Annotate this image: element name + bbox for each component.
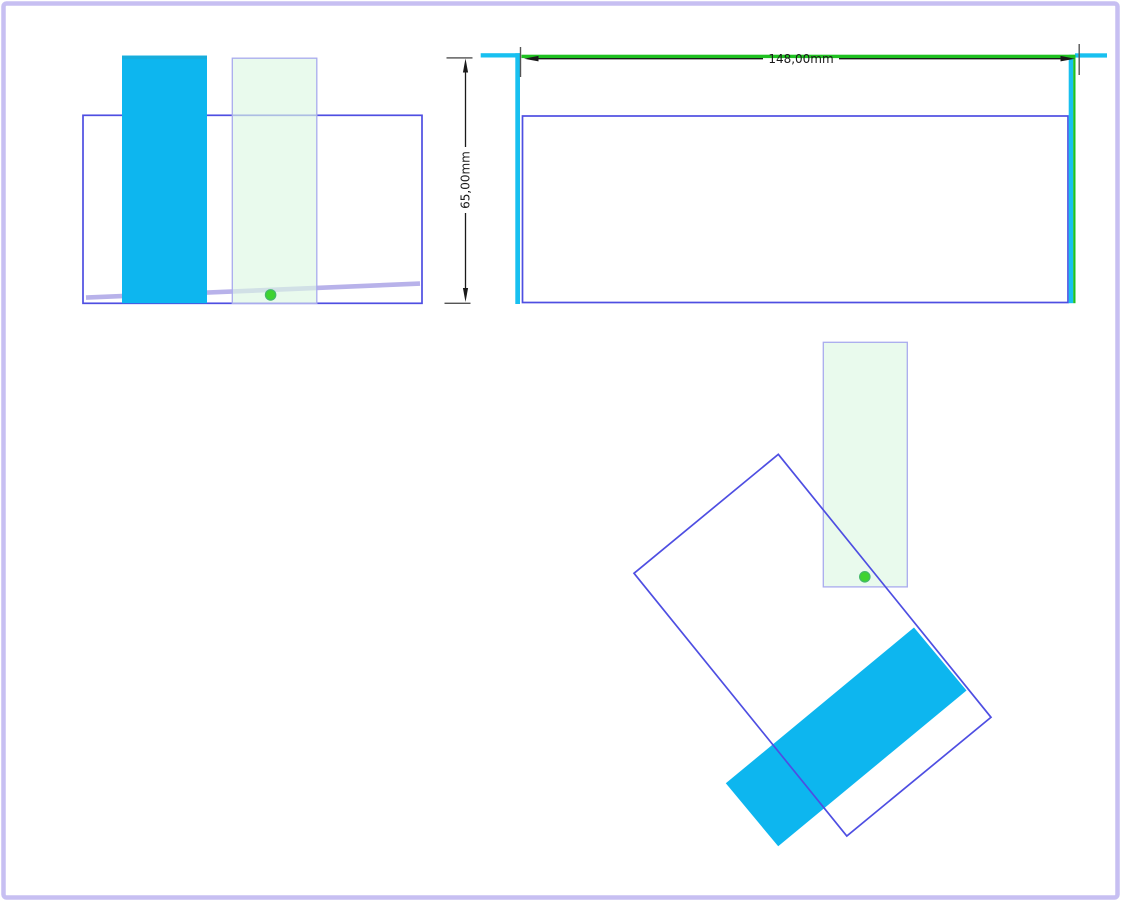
top-outline-rect[interactable] (523, 116, 1069, 303)
height-dim-label[interactable]: 65,00mm (459, 151, 473, 209)
width-dim-extension-tick-left (520, 47, 521, 77)
rotated-vertex-dot[interactable] (860, 572, 870, 582)
height-dim-extension-tick-top (447, 57, 473, 58)
front-glass-panel[interactable] (232, 58, 316, 303)
height-dimension: 65,00mm (445, 57, 473, 304)
top-view: 148,00mm 65,00mm (445, 44, 1108, 304)
front-cyan-solid[interactable] (122, 56, 207, 304)
width-dim-label[interactable]: 148,00mm (768, 52, 833, 66)
rotated-view (634, 342, 991, 846)
rotated-cyan-solid[interactable] (726, 628, 967, 847)
width-dim-extension-tick-right (1079, 44, 1080, 75)
front-cyan-solid-top-edge (122, 56, 207, 60)
height-dim-arrow-up (463, 59, 468, 73)
top-edge-cyan-left[interactable] (515, 53, 520, 304)
top-edge-green-selected-right[interactable] (1073, 55, 1075, 303)
height-dim-extension-tick-bottom (445, 303, 471, 304)
rotated-glass-panel[interactable] (823, 342, 907, 587)
drawing-sheet: 148,00mm 65,00mm (0, 0, 1121, 901)
height-dim-arrow-down (463, 288, 468, 302)
front-view (83, 56, 422, 304)
drawing-canvas: 148,00mm 65,00mm (0, 0, 1121, 901)
width-dimension: 148,00mm (520, 44, 1080, 77)
top-edge-cyan-right[interactable] (1069, 55, 1074, 303)
front-vertex-dot[interactable] (265, 290, 275, 300)
top-edge-cyan-top-left[interactable] (481, 53, 520, 57)
